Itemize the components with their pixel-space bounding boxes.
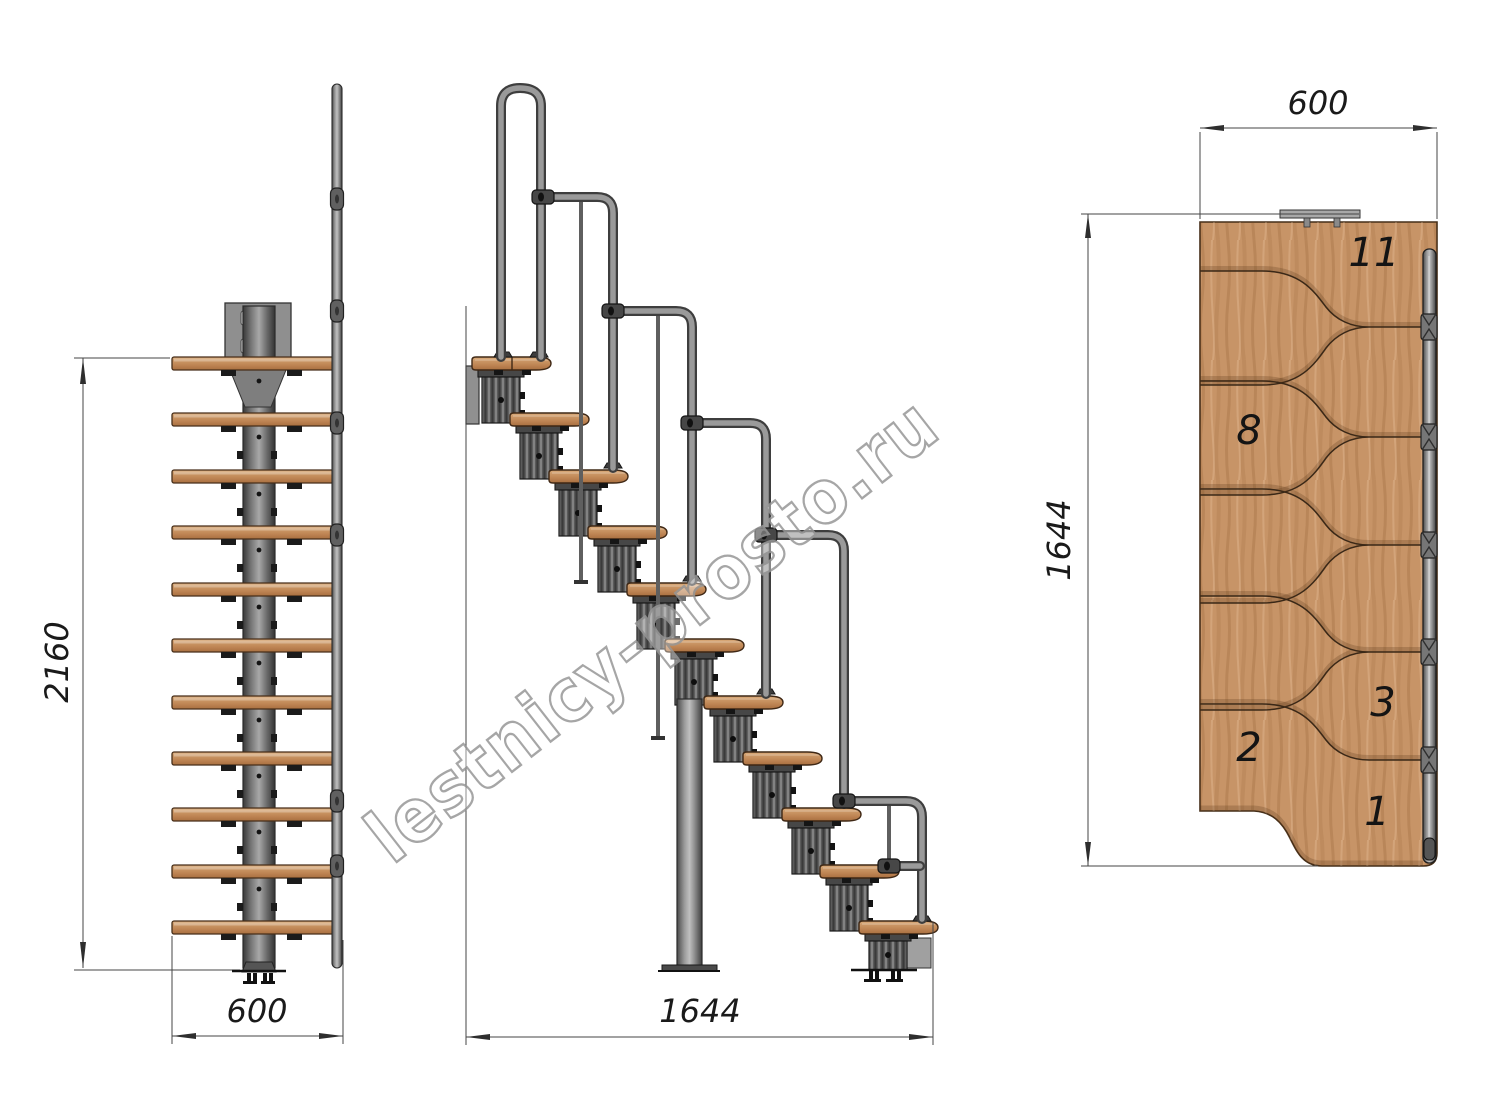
side-floor-module (851, 934, 931, 982)
front-handrail-post (331, 84, 344, 968)
technical-drawing-page: 2160 (0, 0, 1500, 1114)
front-view: 2160 (38, 84, 344, 1044)
front-width-dim-label: 600 (226, 992, 287, 1030)
support-pole (658, 699, 720, 971)
side-length-dim-label: 1644 (659, 992, 740, 1030)
step-number-1: 1 (1364, 789, 1389, 835)
plan-width-dimension: 600 (1200, 84, 1437, 219)
plan-length-dim-label: 1644 (1040, 499, 1078, 580)
staircase-drawing: 2160 (0, 0, 1500, 1114)
side-wall-plate (466, 366, 479, 424)
front-base-foot (232, 962, 286, 984)
step-number-3: 3 (1370, 680, 1395, 726)
step-number-11: 11 (1349, 230, 1400, 276)
front-height-dim-label: 2160 (38, 621, 76, 702)
step-number-8: 8 (1236, 408, 1261, 454)
plan-handrail-rod (1421, 249, 1437, 863)
plan-width-dim-label: 600 (1287, 84, 1348, 122)
step-number-2: 2 (1236, 725, 1261, 771)
plan-view: 11 8 3 2 1 600 1644 (1040, 84, 1437, 866)
